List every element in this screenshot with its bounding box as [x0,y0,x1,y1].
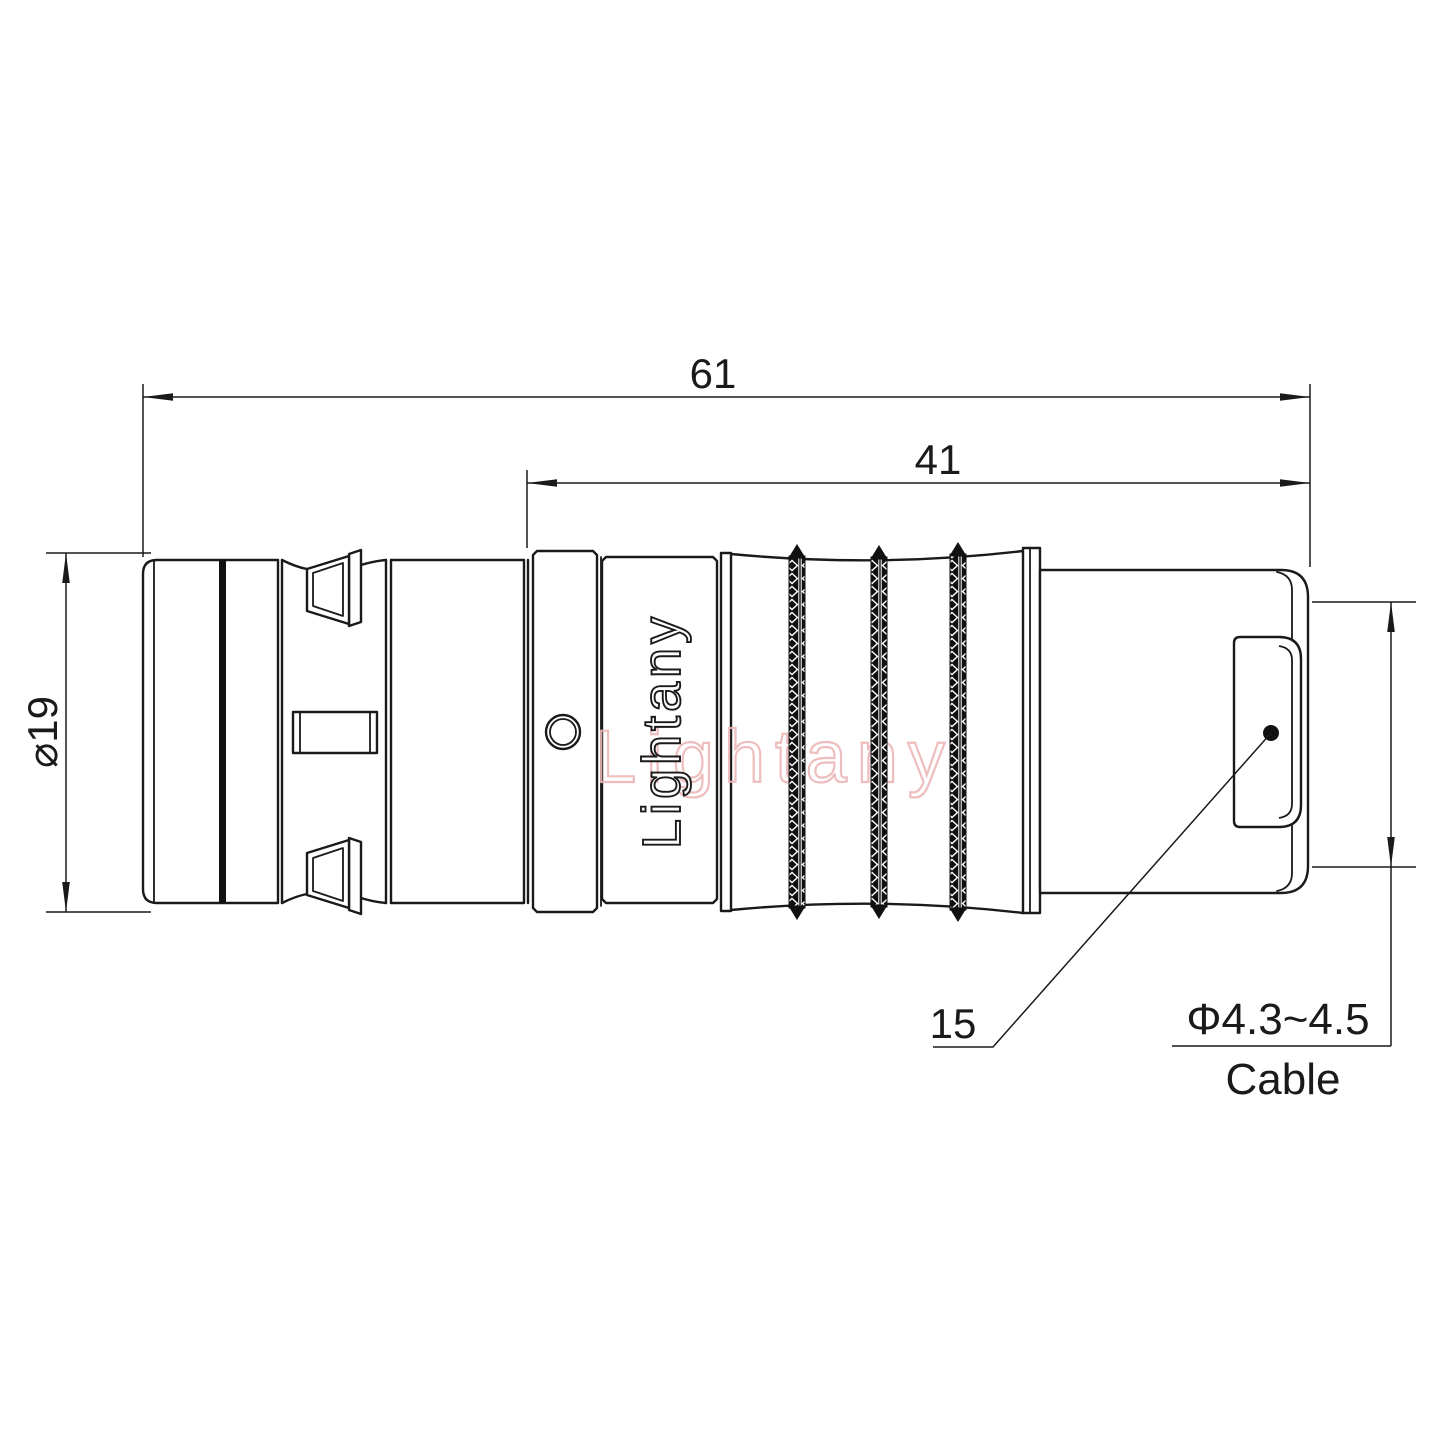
cable-entry-cutout [1234,637,1301,827]
knurl-tip [789,545,805,558]
knurl-tip [950,908,966,921]
knurl-tip [789,906,805,919]
retention-band [219,560,226,903]
extension-lines [143,384,1310,567]
cable-label: Cable [1226,1055,1341,1104]
collar-ring [528,551,601,912]
bayonet-window [293,712,377,753]
bayonet-tab-top [307,550,361,626]
bayonet-tab-bottom [307,838,361,914]
dim-text-rear-length: 15 [930,1000,977,1047]
dim-text-diameter: ⌀19 [19,696,66,768]
drawing-page: Lightany Lightany [0,0,1440,1440]
front-shell-outline [143,560,278,903]
bayonet-right-boundary [386,560,391,903]
tab-top-bar [349,550,361,626]
dim-text-cable-diameter: Φ4.3~4.5 [1186,995,1369,1044]
knurl-tip [950,543,966,556]
window-outline [293,712,377,753]
front-shell [143,560,282,903]
tab-bottom-bar [349,838,361,914]
sleeve-edges [391,560,524,903]
brand-engraving: Lightany [632,613,692,849]
smooth-sleeve [391,560,524,903]
collar-outline [533,551,597,912]
knurl-band-1 [789,545,805,919]
grip-flange [1023,548,1040,913]
dimension-overall-length [143,384,1310,567]
bayonet-section [282,550,391,914]
connector-technical-drawing: Lightany Lightany [0,0,1440,1440]
knurl-band-2 [871,546,887,918]
dim-text-overall-length: 61 [690,350,737,397]
knurl-tip [871,905,887,918]
dim-text-front-length: 41 [915,436,962,483]
knurl-band-3 [950,543,966,921]
extension-lines [1312,602,1416,867]
knurl-tip [871,546,887,559]
